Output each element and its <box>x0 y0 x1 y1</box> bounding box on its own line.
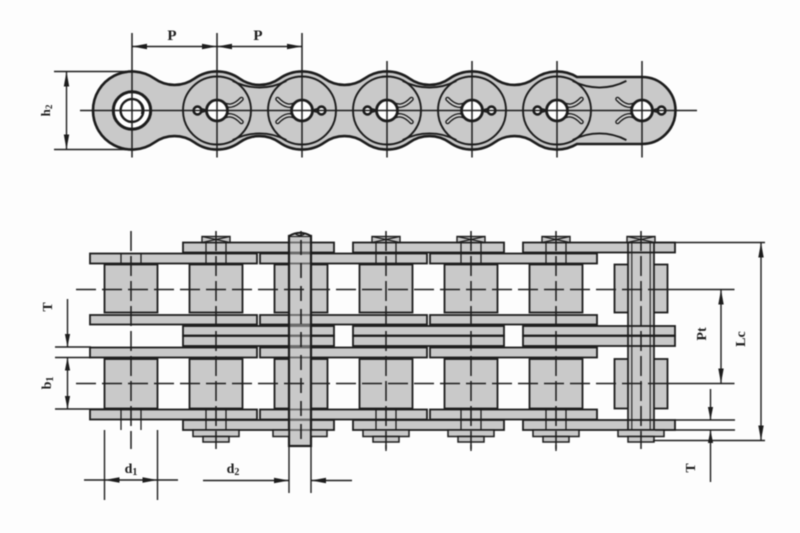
svg-text:Lc: Lc <box>734 331 749 347</box>
svg-text:d2: d2 <box>227 462 240 478</box>
svg-text:b1: b1 <box>40 377 56 390</box>
svg-text:T: T <box>684 463 699 473</box>
svg-text:h2: h2 <box>38 104 54 116</box>
svg-text:P: P <box>167 28 176 44</box>
svg-text:T: T <box>41 302 56 312</box>
svg-text:P: P <box>253 28 262 44</box>
svg-text:d1: d1 <box>125 462 138 478</box>
svg-text:Pt: Pt <box>695 327 710 341</box>
